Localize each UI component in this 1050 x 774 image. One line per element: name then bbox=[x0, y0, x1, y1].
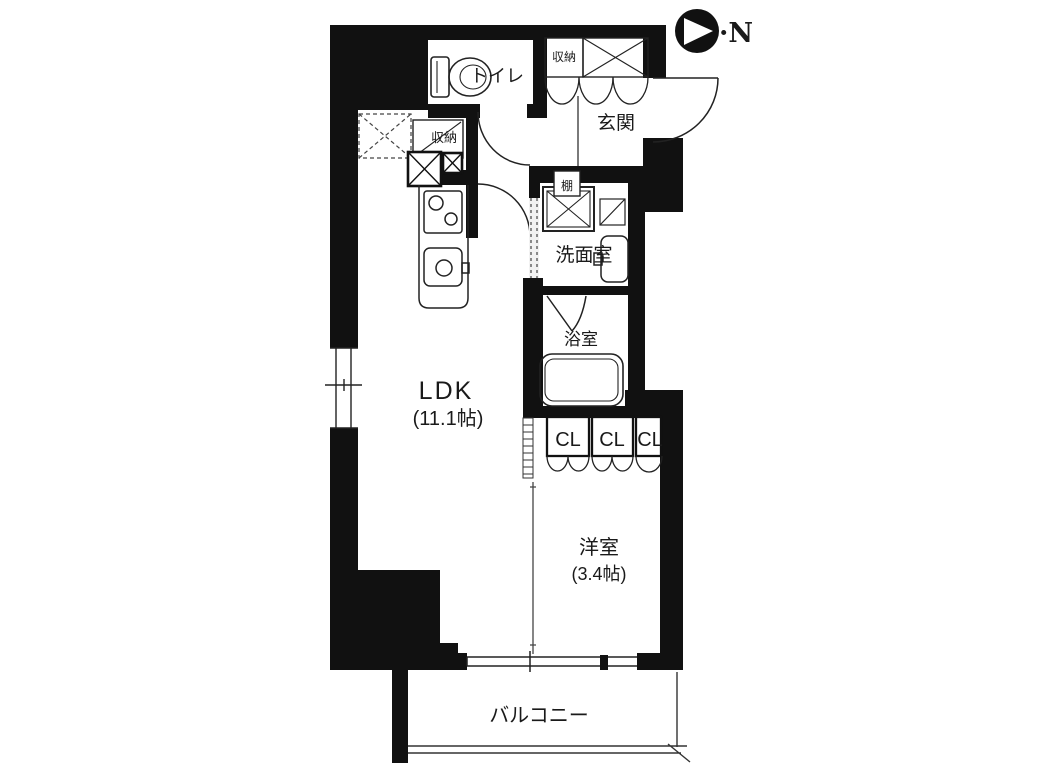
refrigerator-space bbox=[359, 114, 411, 158]
ldk-size-label: (11.1帖) bbox=[413, 407, 484, 430]
toilet-label: トイレ bbox=[470, 66, 524, 86]
closet-door-scallops bbox=[547, 456, 662, 472]
shelf-label: 棚 bbox=[561, 178, 573, 193]
balcony-sliding-window bbox=[467, 651, 637, 672]
toilet-door-swing bbox=[478, 112, 530, 165]
entrance-label: 玄関 bbox=[597, 112, 635, 134]
ldk-label: LDK bbox=[419, 377, 474, 405]
shoe-cabinet-cross bbox=[583, 38, 648, 77]
north-compass: ·N bbox=[675, 9, 753, 53]
washroom-sliding-door bbox=[529, 198, 539, 278]
storage-top-label: 収納 bbox=[552, 50, 576, 64]
washroom-label: 洗面室 bbox=[555, 244, 612, 266]
kitchen-counter bbox=[419, 185, 469, 308]
bathtub bbox=[540, 354, 623, 406]
floor-plan: ·N bbox=[0, 0, 1050, 774]
balcony-label: バルコニー bbox=[489, 705, 589, 727]
stove-burner-2 bbox=[445, 213, 457, 225]
storage-kitchen-label: 収納 bbox=[431, 130, 457, 145]
genkan-closet-doors bbox=[545, 77, 648, 104]
stove-burner-1 bbox=[429, 196, 443, 210]
hatched-wall-stub bbox=[523, 418, 533, 478]
kitchen-sink bbox=[424, 248, 462, 286]
stove bbox=[424, 191, 462, 233]
floor-plan-drawing: ·N bbox=[0, 0, 1050, 774]
closet-1-label: CL bbox=[555, 429, 581, 451]
left-wall-window bbox=[325, 348, 362, 428]
closet-3-label: CL bbox=[637, 429, 663, 451]
washroom-cabinet-diagonal bbox=[600, 199, 625, 225]
closet-2-label: CL bbox=[599, 429, 625, 451]
sink-drain bbox=[436, 260, 452, 276]
compass-label: ·N bbox=[719, 18, 753, 49]
bathroom-folding-door bbox=[547, 296, 586, 331]
hall-door-swing bbox=[478, 184, 530, 236]
entrance-door-swing bbox=[653, 78, 718, 142]
ldk-western-partition bbox=[530, 482, 536, 654]
western-room-label: 洋室 bbox=[579, 536, 619, 559]
western-room-size-label: (3.4帖) bbox=[571, 564, 626, 584]
walls bbox=[330, 25, 683, 763]
bathroom-label: 浴室 bbox=[564, 330, 598, 349]
